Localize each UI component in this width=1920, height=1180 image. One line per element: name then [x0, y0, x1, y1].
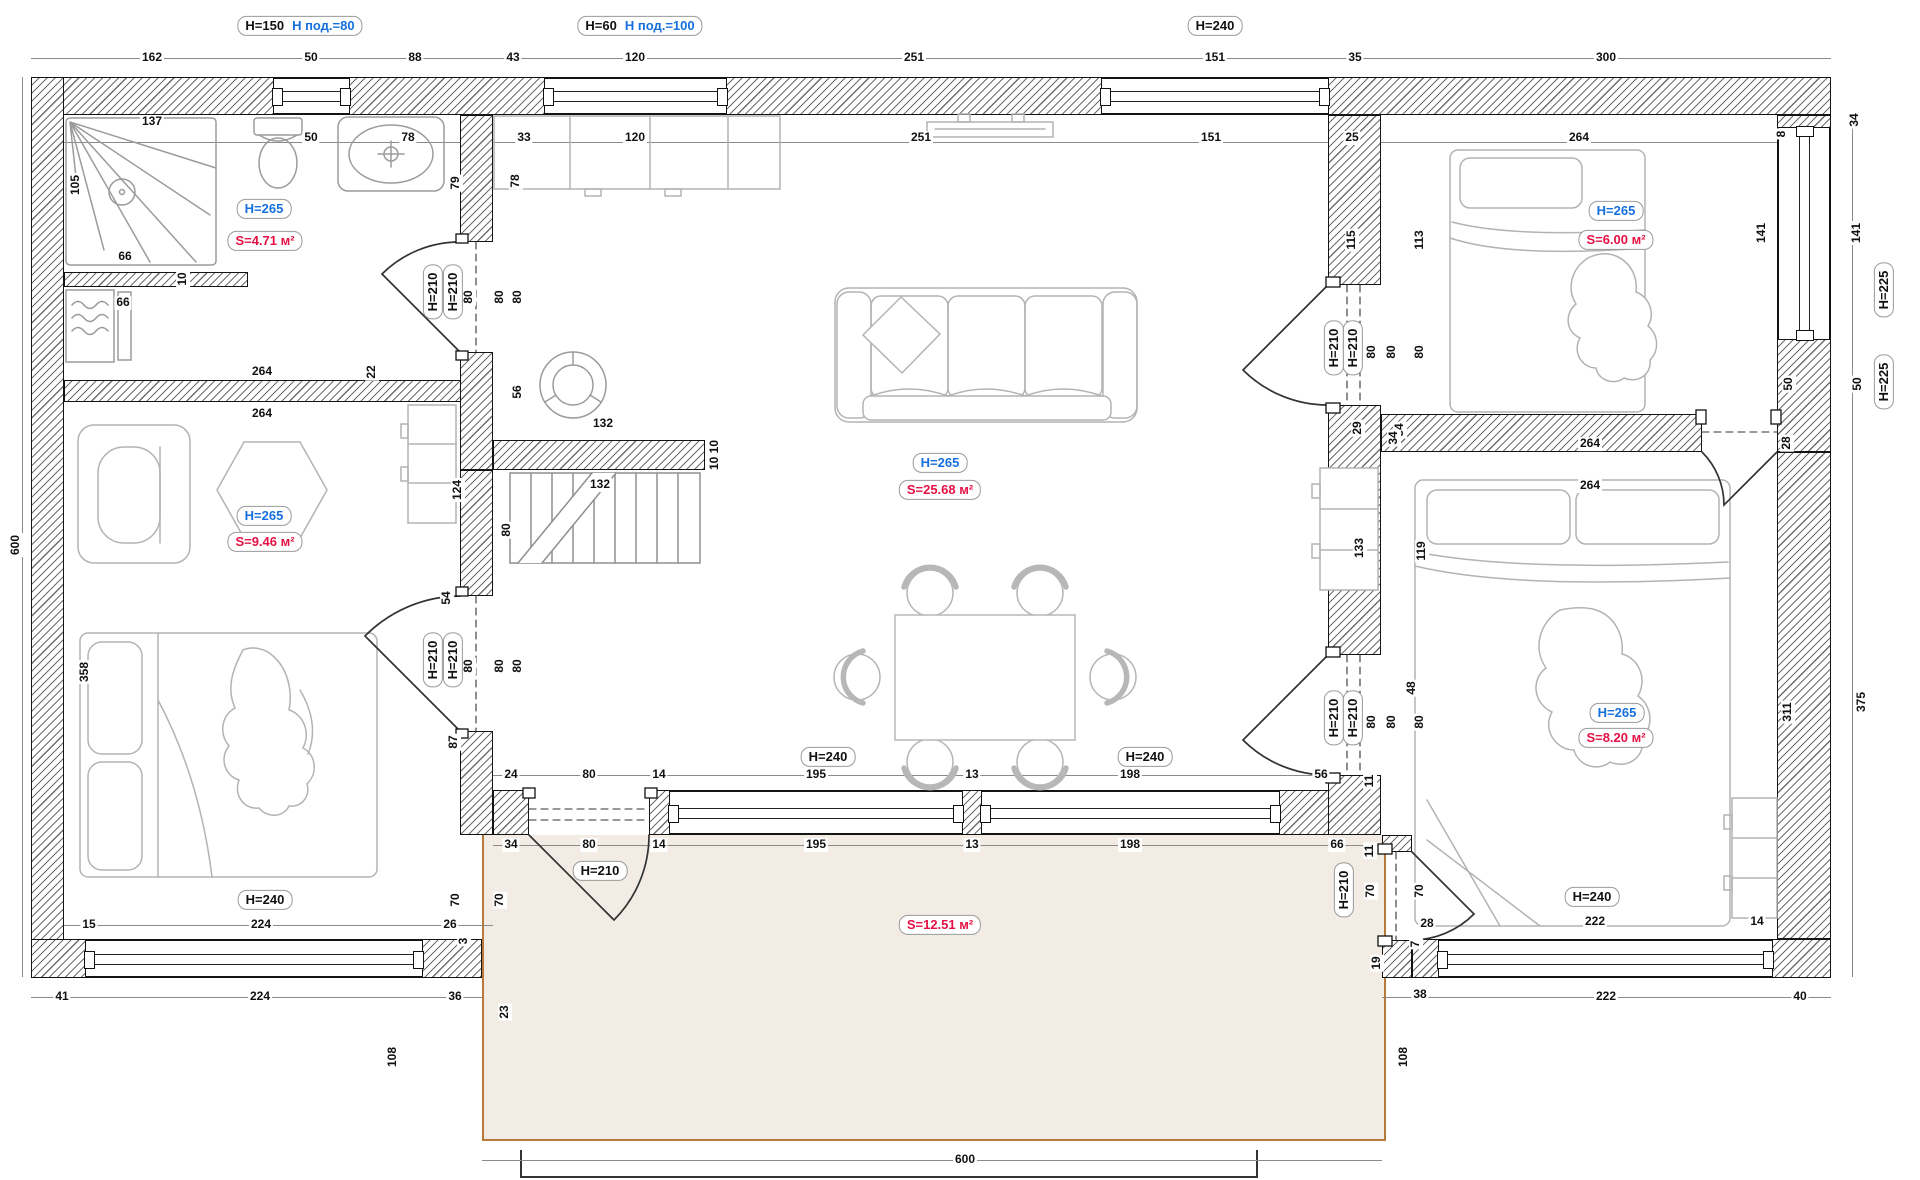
- dim-label: 115: [1345, 228, 1359, 251]
- sofa-pillow: [863, 297, 940, 373]
- room-area-badge: S=25.68 м²: [899, 480, 981, 500]
- dim-label: 195: [804, 768, 828, 782]
- dim-label: 264: [250, 365, 274, 379]
- dresser: [1724, 798, 1777, 918]
- dim-label: 133: [1353, 536, 1367, 560]
- dim-label: 162: [140, 51, 164, 65]
- dim-label: 141: [1850, 221, 1864, 245]
- dim-label: 66: [116, 250, 133, 264]
- dim-label: 50: [1782, 375, 1796, 392]
- dim-label: 198: [1118, 768, 1142, 782]
- doors: [365, 234, 1781, 946]
- dim-label: 3: [457, 936, 471, 947]
- window-height-badge: H=225: [1874, 355, 1894, 410]
- dim-label: 50: [302, 131, 319, 145]
- dim-label: 28: [1780, 434, 1794, 451]
- dim-label: 141: [1755, 221, 1769, 245]
- dim-label: 105: [69, 173, 83, 197]
- dim-label: 264: [1567, 131, 1591, 145]
- dim-label: 78: [509, 172, 523, 189]
- room-height-badge: H=265: [237, 506, 292, 526]
- window-height-badge: H=210: [1343, 691, 1363, 746]
- dim-label: 80: [511, 288, 525, 305]
- dim-label: 54: [440, 589, 454, 606]
- dim-label: 132: [591, 417, 615, 431]
- room-area-badge: S=8.20 м²: [1578, 728, 1653, 748]
- dim-label: 11: [1363, 773, 1377, 790]
- dim-label: 14: [650, 768, 667, 782]
- dim-label: 23: [498, 1003, 512, 1020]
- dim-label: 80: [580, 768, 597, 782]
- dim-label: 137: [140, 115, 164, 129]
- sofa: [835, 288, 1137, 422]
- dim-label: 80: [1365, 713, 1379, 730]
- kitchen-counter: [494, 116, 780, 196]
- dining-set: [834, 567, 1136, 787]
- dim-label: 29: [1351, 419, 1365, 436]
- dim-label: 56: [511, 383, 525, 400]
- dim-label: 80: [1385, 713, 1399, 730]
- dim-label: 124: [451, 478, 465, 502]
- dim-label: 80: [1413, 343, 1427, 360]
- furniture-layer: [0, 0, 1920, 1180]
- dim-label: 151: [1199, 131, 1223, 145]
- dim-label: 70: [1413, 882, 1427, 899]
- window-height-badge: H=210: [1324, 691, 1344, 746]
- dim-label: 132: [588, 478, 612, 492]
- dim-label: 70: [1364, 882, 1378, 899]
- dim-label: 13: [963, 838, 980, 852]
- dim-label: 33: [515, 131, 532, 145]
- dim-label: 70: [449, 891, 463, 908]
- room-height-badge: H=265: [1589, 201, 1644, 221]
- dim-label: 80: [493, 657, 507, 674]
- dim-label: 120: [623, 51, 647, 65]
- window-height-badge: H=210: [423, 633, 443, 688]
- dim-label: 40: [1791, 990, 1808, 1004]
- room-area-badge: S=6.00 м²: [1578, 230, 1653, 250]
- dim-label: 80: [1385, 343, 1399, 360]
- dim-label: 375: [1855, 690, 1869, 714]
- dim-label: 66: [1328, 838, 1345, 852]
- room-height-badge: H=265: [913, 453, 968, 473]
- dim-label: 36: [446, 990, 463, 1004]
- bed-left: [80, 633, 377, 877]
- dim-label: 251: [909, 131, 933, 145]
- dim-label: 41: [53, 990, 70, 1004]
- dim-label: 26: [441, 918, 458, 932]
- dim-label: 251: [902, 51, 926, 65]
- dim-label: 28: [1418, 917, 1435, 931]
- dim-label: 80: [1413, 713, 1427, 730]
- dim-label: 222: [1583, 915, 1607, 929]
- dim-label: 11: [1363, 843, 1377, 860]
- floor-plan: 16250884312025115135300H=150Н под.=80H=6…: [0, 0, 1920, 1180]
- dim-label: 50: [302, 51, 319, 65]
- dim-label: 600: [953, 1153, 977, 1167]
- dim-label: 151: [1203, 51, 1227, 65]
- dim-label: 24: [502, 768, 519, 782]
- dim-label: 358: [78, 660, 92, 684]
- window-height-badge: H=210: [1343, 321, 1363, 376]
- window-height-badge: H=210: [1334, 863, 1354, 918]
- window-height-badge: H=240: [801, 747, 856, 767]
- window-height-badge: H=225: [1874, 263, 1894, 318]
- dim-label: 113: [1413, 228, 1427, 251]
- armchair: [78, 425, 190, 563]
- dining-table: [895, 615, 1075, 740]
- dim-label: 56: [1312, 768, 1329, 782]
- dim-label: 224: [248, 990, 272, 1004]
- dim-label: 35: [1346, 51, 1363, 65]
- dim-label: 80: [493, 288, 507, 305]
- dim-label: 70: [493, 891, 507, 908]
- dim-label: 80: [462, 288, 476, 305]
- dim-label: 10: [176, 270, 190, 287]
- dim-label: 120: [623, 131, 647, 145]
- bed-top-right: [1450, 150, 1657, 412]
- dim-label: 88: [406, 51, 423, 65]
- dim-label: 14: [650, 838, 667, 852]
- dim-label: 311: [1781, 700, 1795, 723]
- window-height-badge: H=210: [443, 633, 463, 688]
- dim-label: 43: [504, 51, 521, 65]
- dim-label: 78: [399, 131, 416, 145]
- dim-label: 108: [386, 1045, 400, 1069]
- dim-label: 50: [1851, 375, 1865, 392]
- room-height-badge: H=265: [1590, 703, 1645, 723]
- dim-label: 14: [1748, 915, 1765, 929]
- dim-label: 22: [365, 363, 379, 380]
- dim-label: 600: [9, 533, 23, 557]
- dim-label: 87: [447, 733, 461, 750]
- room-area-badge: S=12.51 м²: [899, 915, 981, 935]
- dim-label: 224: [249, 918, 273, 932]
- dim-label: 119: [1415, 539, 1429, 562]
- window-height-badge: H=240: [1118, 747, 1173, 767]
- tv: [927, 114, 1053, 137]
- dim-label: 264: [1578, 437, 1602, 451]
- window-spec-badge: H=150Н под.=80: [237, 16, 362, 36]
- dim-label: 222: [1594, 990, 1618, 1004]
- bath-sink: [338, 117, 444, 191]
- dim-label: 195: [804, 838, 828, 852]
- dim-label: 7: [1409, 939, 1423, 950]
- dim-label: 10 10: [708, 438, 722, 472]
- dim-label: 198: [1118, 838, 1142, 852]
- dim-label: 48: [1405, 679, 1419, 696]
- dim-label: 66: [114, 296, 131, 310]
- dim-label: 34: [1848, 111, 1862, 128]
- room-height-badge: H=265: [237, 199, 292, 219]
- dim-label: 80: [580, 838, 597, 852]
- dim-label: 79: [449, 174, 463, 191]
- dim-label: 264: [250, 407, 274, 421]
- window-height-badge: H=210: [1324, 321, 1344, 376]
- dim-label: 19: [1370, 954, 1384, 971]
- room-area-badge: S=9.46 м²: [227, 532, 302, 552]
- dim-label: 300: [1594, 51, 1618, 65]
- dim-label: 108: [1397, 1045, 1411, 1069]
- window-height-badge: H=240: [1188, 16, 1243, 36]
- dim-label: 8: [1775, 129, 1789, 140]
- dim-label: 80: [500, 521, 514, 538]
- shower: [66, 118, 216, 265]
- dim-label: 13: [963, 768, 980, 782]
- dim-label: 264: [1578, 479, 1602, 493]
- window-height-badge: H=240: [1565, 887, 1620, 907]
- office-cabinet: [401, 405, 456, 523]
- hall-wardrobe: [1312, 468, 1378, 590]
- dim-label: 34: [502, 838, 519, 852]
- dim-label: 80: [462, 657, 476, 674]
- toilet: [254, 118, 302, 188]
- door-between-bedrooms: [1702, 432, 1777, 505]
- dim-label: 25: [1343, 131, 1360, 145]
- window-spec-badge: H=60Н под.=100: [577, 16, 702, 36]
- dim-label: 15: [80, 918, 97, 932]
- bed-bottom-right: [1415, 480, 1730, 926]
- dim-label: 80: [1365, 343, 1379, 360]
- window-height-badge: H=240: [238, 890, 293, 910]
- window-height-badge: H=210: [443, 265, 463, 320]
- dim-label: 34: [1387, 429, 1401, 446]
- dim-label: 80: [511, 657, 525, 674]
- window-height-badge: H=210: [573, 861, 628, 881]
- dim-label: 38: [1411, 988, 1428, 1002]
- water-heater: [540, 352, 606, 418]
- window-height-badge: H=210: [423, 265, 443, 320]
- room-area-badge: S=4.71 м²: [227, 231, 302, 251]
